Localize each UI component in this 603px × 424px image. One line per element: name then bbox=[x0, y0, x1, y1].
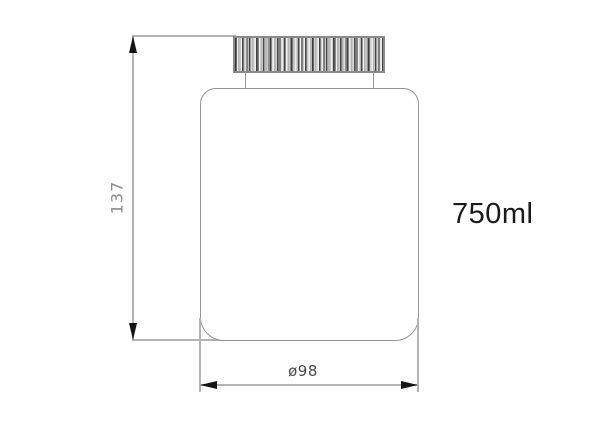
bottle-neck bbox=[245, 72, 374, 89]
dimension-arrow-left-icon bbox=[200, 381, 217, 389]
technical-drawing: 137 ø98 750ml bbox=[0, 0, 603, 424]
dimension-arrow-down-icon bbox=[129, 323, 137, 340]
height-dim-extension-line-bottom bbox=[132, 339, 228, 341]
diameter-dimension-label: ø98 bbox=[268, 362, 338, 380]
cap-ribs-texture bbox=[235, 38, 383, 71]
diameter-dimension-line bbox=[200, 384, 418, 386]
bottle-cap bbox=[233, 36, 385, 73]
height-dimension-line bbox=[132, 36, 134, 340]
height-dim-extension-line-top bbox=[132, 35, 236, 37]
dimension-arrow-up-icon bbox=[129, 36, 137, 53]
dimension-arrow-right-icon bbox=[401, 381, 418, 389]
volume-label: 750ml bbox=[452, 198, 534, 231]
height-dimension-label: 137 bbox=[108, 176, 127, 220]
bottle-body bbox=[200, 88, 419, 341]
